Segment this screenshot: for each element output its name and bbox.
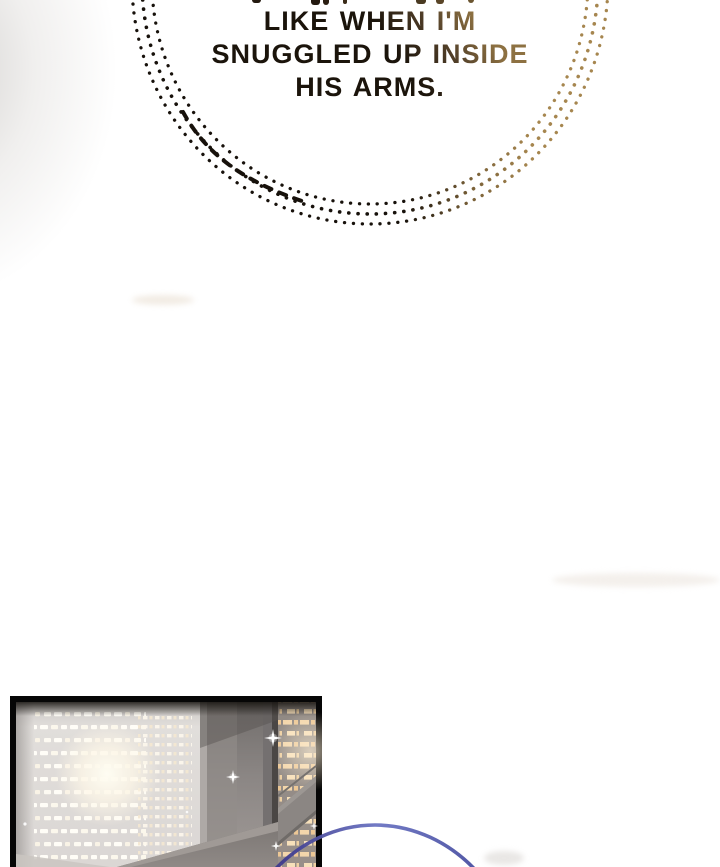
incoming-speech-bubble-outline — [190, 800, 590, 867]
glyph-fragment — [252, 0, 261, 3]
brush-dash-accents — [183, 112, 302, 201]
comic-page: LIKE WHEN I'M SNUGGLED UP INSIDE HIS ARM… — [0, 0, 720, 867]
glyph-fragment — [468, 0, 474, 3]
faint-smudge — [552, 573, 720, 587]
sparkle-icon — [186, 811, 189, 814]
faint-smudge — [132, 295, 194, 305]
speech-line-2: SNUGGLED UP INSIDE — [170, 38, 570, 71]
glyph-fragment — [343, 0, 347, 4]
inner-top-shadow — [16, 702, 316, 716]
glass-sheen — [16, 702, 200, 867]
speech-line-3: HIS ARMS. — [170, 71, 570, 104]
sparkle-icon — [23, 822, 26, 825]
glyph-fragment — [416, 0, 426, 4]
glyph-fragment — [436, 0, 444, 4]
speech-bubble-text: LIKE WHEN I'M SNUGGLED UP INSIDE HIS ARM… — [170, 5, 570, 104]
speech-line-1: LIKE WHEN I'M — [170, 5, 570, 38]
